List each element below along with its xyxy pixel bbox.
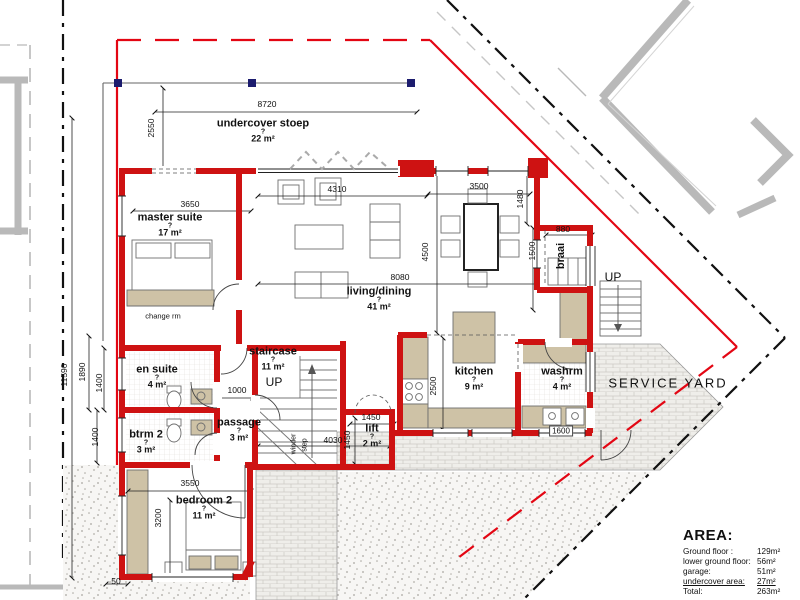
dimension-label-3200: 3200	[153, 509, 163, 528]
room-label-undercover-stoep: undercover stoep?22 m²	[217, 118, 309, 145]
dimension-label-4500: 4500	[420, 243, 430, 262]
dimension-label-1400: 1400	[90, 428, 100, 447]
dimension-label-1500: 1500	[527, 242, 537, 261]
area-table-row: Total:263m²	[683, 587, 783, 597]
room-label-en-suite: en suite?4 m²	[136, 364, 178, 391]
dimension-label-50: 50	[111, 576, 120, 586]
dimension-label-8080: 8080	[391, 272, 410, 282]
dimension-label-3500: 3500	[470, 181, 489, 191]
dimension-label-1450: 1450	[342, 431, 352, 450]
dimension-label-1600: 1600	[549, 426, 573, 437]
dimension-label-880: 880	[556, 224, 570, 234]
area-table: AREA: Ground floor :129m²lower ground fl…	[683, 527, 783, 597]
dimension-label-4030: 4030	[324, 435, 343, 445]
label-up-staircase: UP	[266, 375, 283, 389]
dimension-label-2500: 2500	[428, 377, 438, 396]
dimension-label-1400: 1400	[94, 374, 104, 393]
dimension-label-1480: 1480	[515, 190, 525, 209]
label-up-external: UP	[605, 270, 622, 284]
label-step: step	[302, 438, 309, 451]
room-label-master-suite: master suite?17 m²	[138, 212, 203, 239]
dimension-label-1000: 1000	[228, 385, 247, 395]
room-label-staircase: staircase?11 m²	[249, 346, 297, 373]
dimension-label-8720: 8720	[258, 99, 277, 109]
room-label-braai: braai	[555, 243, 567, 269]
label-winder: winder	[291, 434, 298, 455]
area-table-row: undercover area:27m²	[683, 577, 783, 587]
room-label-btrm-2: btrm 2?3 m²	[129, 429, 163, 456]
area-table-row: lower ground floor:56m²	[683, 557, 783, 567]
room-label-kitchen: kitchen?9 m²	[455, 366, 494, 393]
dimension-label-2550: 2550	[146, 119, 156, 138]
room-label-washrm: washrm?4 m²	[541, 366, 583, 393]
room-label-lift: lift?2 m²	[363, 423, 382, 450]
dimension-label-11590: 11590	[59, 363, 69, 386]
label-change-rm: change rm	[145, 312, 180, 321]
label-layer: undercover stoep?22 m²master suite?17 m²…	[0, 0, 800, 600]
room-label-living-dining: living/dining?41 m²	[347, 286, 412, 313]
area-table-row: Ground floor :129m²	[683, 547, 783, 557]
area-table-rows: Ground floor :129m²lower ground floor:56…	[683, 547, 783, 597]
floor-plan-page: undercover stoep?22 m²master suite?17 m²…	[0, 0, 800, 600]
dimension-label-1890: 1890	[77, 363, 87, 382]
room-label-passage: passage?3 m²	[217, 417, 261, 444]
area-table-heading: AREA:	[683, 527, 783, 544]
dimension-label-3650: 3650	[181, 199, 200, 209]
area-table-row: garage:51m²	[683, 567, 783, 577]
dimension-label-1450: 1450	[362, 412, 381, 422]
dimension-label-3550: 3550	[181, 478, 200, 488]
dimension-label-4310: 4310	[328, 184, 347, 194]
room-label-bedroom-2: bedroom 2?11 m²	[176, 495, 232, 522]
label-service-yard: SERVICE YARD	[608, 376, 727, 391]
